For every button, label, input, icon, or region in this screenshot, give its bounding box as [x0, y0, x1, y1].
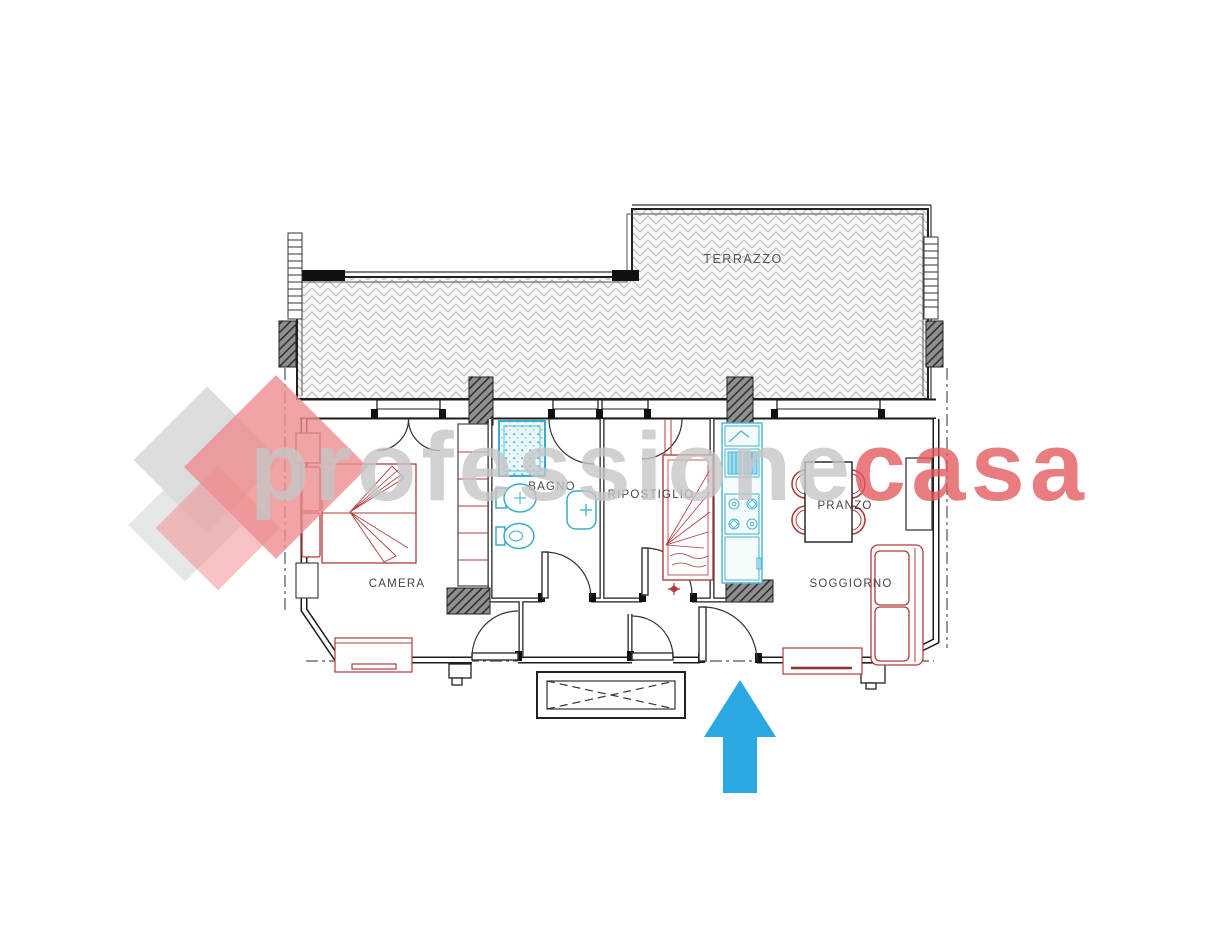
brand-text: professionecasa — [250, 412, 1085, 521]
terrace-side-railing-left — [288, 233, 302, 319]
terrace-floor — [297, 209, 928, 399]
brand-text-red: casa — [852, 412, 1085, 521]
door-swing-arc — [472, 611, 518, 657]
entrance-door-leaf — [699, 607, 706, 661]
door-swing-arc — [545, 552, 591, 598]
entrance-door-swing-arc — [703, 607, 757, 661]
dresser — [335, 638, 412, 672]
pillar — [926, 321, 943, 367]
symbol-marker — [668, 583, 680, 595]
door-leaf — [642, 548, 648, 595]
room-label-soggiorno: SOGGIORNO — [809, 578, 892, 590]
door-leaf — [542, 552, 548, 598]
room-label-camera: CAMERA — [369, 578, 425, 590]
toilet — [496, 524, 534, 549]
stair-shaft — [537, 672, 685, 718]
terrace-side-railing-right — [924, 237, 938, 319]
door-leaf — [632, 653, 673, 660]
door-leaf — [472, 653, 518, 660]
pillar — [279, 321, 296, 367]
sofa — [871, 545, 923, 665]
terrace-area: TERRAZZO — [279, 205, 943, 399]
brand-text-gray: professione — [250, 412, 848, 521]
pillar — [447, 588, 490, 614]
door-swing-arc — [632, 616, 673, 657]
entrance-arrow-icon — [704, 680, 776, 793]
kitchen-counter — [725, 537, 761, 580]
floor-plan-page: TERRAZZO — [0, 0, 1232, 928]
room-label-terrazzo: TERRAZZO — [703, 252, 782, 266]
tv-stand — [783, 648, 862, 674]
floor-plan-drawing: TERRAZZO — [0, 0, 1232, 928]
